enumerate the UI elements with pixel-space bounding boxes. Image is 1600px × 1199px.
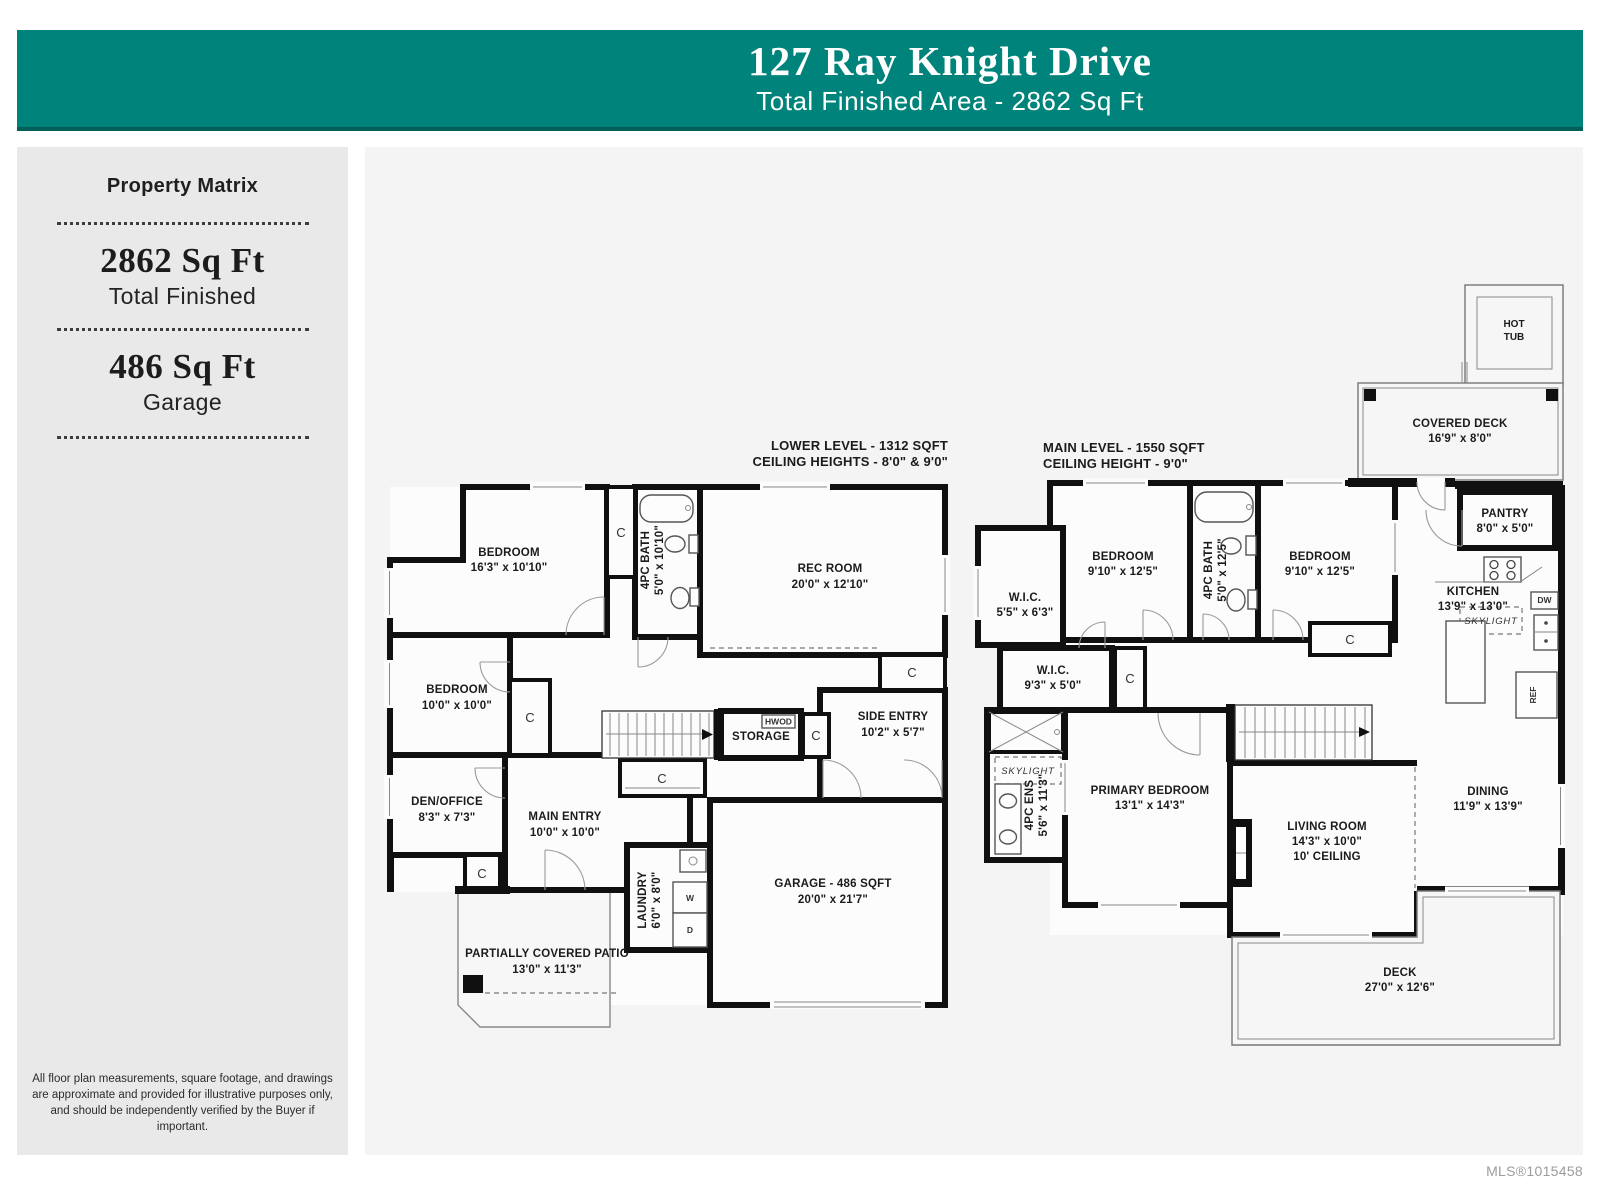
room-dims: 9'10" x 12'5" xyxy=(1088,566,1158,578)
room-dims: 9'3" x 5'0" xyxy=(1025,680,1082,692)
room-label: BEDROOM xyxy=(426,684,487,696)
covered-deck xyxy=(1358,383,1563,480)
total-finished-label: Total Finished xyxy=(109,283,257,310)
fireplace-icon xyxy=(1229,819,1252,887)
patio-post xyxy=(463,975,483,993)
room-label: LIVING ROOM xyxy=(1287,821,1367,833)
total-finished-value: 2862 Sq Ft xyxy=(100,241,264,281)
room-dims: 11'9" x 13'9" xyxy=(1453,801,1523,813)
room-label: DECK xyxy=(1383,967,1417,979)
property-matrix-panel: Property Matrix 2862 Sq Ft Total Finishe… xyxy=(17,147,348,1155)
room-label: SIDE ENTRY xyxy=(858,711,929,723)
page-subtitle: Total Finished Area - 2862 Sq Ft xyxy=(317,86,1583,117)
toilet-icon xyxy=(1227,589,1257,611)
room-wic-large xyxy=(1000,648,1112,710)
room-dims: 8'3" x 7'3" xyxy=(419,812,476,824)
main-level-ceiling: CEILING HEIGHT - 9'0" xyxy=(1043,456,1188,471)
room-dims: 10'2" x 5'7" xyxy=(861,727,925,739)
dishwasher-label: DW xyxy=(1537,595,1552,605)
property-matrix-title: Property Matrix xyxy=(107,175,258,198)
disclaimer-text: All floor plan measurements, square foot… xyxy=(32,1071,334,1135)
room-note: 10' CEILING xyxy=(1293,851,1361,863)
room-side-entry xyxy=(820,690,945,800)
hot-tub-label: HOT xyxy=(1503,319,1524,330)
stove-icon xyxy=(1484,557,1521,582)
room-dims: 9'10" x 12'5" xyxy=(1285,566,1355,578)
room-dims: 20'0" x 12'10" xyxy=(792,579,869,591)
room-label: GARAGE - 486 SQFT xyxy=(774,878,891,890)
room-wic-small xyxy=(978,528,1063,645)
room-label: 4PC ENS xyxy=(1024,780,1036,831)
room-dims: 27'0" x 12'6" xyxy=(1365,982,1435,994)
room-dims: 10'0" x 10'0" xyxy=(530,827,600,839)
closet-label: C xyxy=(1345,632,1354,647)
deck-post xyxy=(1546,389,1558,401)
room-label: REC ROOM xyxy=(798,563,863,575)
room-label: COVERED DECK xyxy=(1412,418,1508,430)
room-label: BEDROOM xyxy=(1289,551,1350,563)
skylight-label: SKYLIGHT xyxy=(1464,616,1518,627)
room-label: DINING xyxy=(1467,786,1508,798)
toilet-icon xyxy=(671,588,699,609)
room-dims: 16'3" x 10'10" xyxy=(471,562,548,574)
lower-level-title: LOWER LEVEL - 1312 SQFT xyxy=(771,438,948,453)
floor-plan-lower-level: LOWER LEVEL - 1312 SQFT CEILING HEIGHTS … xyxy=(380,430,960,1060)
closet-label: C xyxy=(657,771,666,786)
fridge-label: REF xyxy=(1528,687,1538,704)
sink-icon xyxy=(665,535,698,553)
lower-level-ceiling: CEILING HEIGHTS - 8'0" & 9'0" xyxy=(752,454,948,469)
room-dims: 6'0" x 8'0" xyxy=(651,872,663,929)
room-dims: 8'0" x 5'0" xyxy=(1477,523,1534,535)
room-dims: 10'0" x 10'0" xyxy=(422,700,492,712)
room-label: BEDROOM xyxy=(1092,551,1153,563)
stairs-main xyxy=(1235,705,1372,760)
closet-label: C xyxy=(477,866,486,881)
room-dims: 16'9" x 8'0" xyxy=(1428,433,1492,445)
hwod-label: HWOD xyxy=(765,717,792,727)
double-sink-icon xyxy=(995,784,1021,854)
deck-post xyxy=(1364,389,1376,401)
room-label: LAUNDRY xyxy=(637,871,649,928)
garage-value: 486 Sq Ft xyxy=(109,347,255,387)
mls-number: MLS®1015458 xyxy=(1486,1163,1583,1179)
bathtub-icon xyxy=(640,495,693,522)
garage-label: Garage xyxy=(143,389,222,416)
closet-label: C xyxy=(1125,671,1134,686)
closet-label: C xyxy=(616,525,625,540)
dotted-divider xyxy=(57,222,309,225)
room-living xyxy=(1230,763,1417,935)
room-label: PRIMARY BEDROOM xyxy=(1091,785,1210,797)
room-dims: 5'5" x 6'3" xyxy=(997,607,1054,619)
room-dims: 13'9" x 13'0" xyxy=(1438,601,1508,613)
hot-tub-label: TUB xyxy=(1504,332,1525,343)
room-label: 4PC BATH xyxy=(640,531,652,589)
closet-label: C xyxy=(525,710,534,725)
room-label: MAIN ENTRY xyxy=(528,811,601,823)
floor-plan-sheet: 127 Ray Knight Drive Total Finished Area… xyxy=(0,0,1600,1199)
room-label: W.I.C. xyxy=(1037,665,1070,677)
main-level-title: MAIN LEVEL - 1550 SQFT xyxy=(1043,440,1205,455)
dryer-icon: D xyxy=(687,925,693,935)
room-dims: 13'0" x 11'3" xyxy=(512,964,582,976)
room-label: BEDROOM xyxy=(478,547,539,559)
stairs-lower xyxy=(602,709,721,760)
closet-label: C xyxy=(907,665,916,680)
room-label: PARTIALLY COVERED PATIO xyxy=(465,948,629,960)
room-label: STORAGE xyxy=(732,731,790,743)
washer-icon: W xyxy=(686,893,695,903)
room-label: PANTRY xyxy=(1481,508,1528,520)
kitchen-sink-icon xyxy=(1534,615,1558,650)
closet-label: C xyxy=(811,728,820,743)
room-dims: 13'1" x 14'3" xyxy=(1115,800,1185,812)
dotted-divider xyxy=(57,328,309,331)
room-dims: 20'0" x 21'7" xyxy=(798,894,868,906)
shower-icon xyxy=(989,712,1063,752)
floor-plan-main-level: MAIN LEVEL - 1550 SQFT CEILING HEIGHT - … xyxy=(965,270,1575,1060)
garage-door xyxy=(770,998,925,1009)
bathtub-icon xyxy=(1195,492,1253,522)
page-title: 127 Ray Knight Drive xyxy=(317,40,1583,83)
room-label: W.I.C. xyxy=(1009,592,1042,604)
room-dims: 5'0" x 10'10" xyxy=(654,525,666,595)
kitchen-island xyxy=(1446,621,1485,703)
room-dims: 5'6" x 11'3" xyxy=(1038,774,1050,837)
room-pantry xyxy=(1460,492,1555,548)
room-label: DEN/OFFICE xyxy=(411,796,483,808)
room-dims: 5'0" x 12'5" xyxy=(1217,538,1229,602)
room-label: KITCHEN xyxy=(1447,586,1500,598)
header-banner: 127 Ray Knight Drive Total Finished Area… xyxy=(17,30,1583,131)
room-label: 4PC BATH xyxy=(1203,541,1215,599)
room-dims: 14'3" x 10'0" xyxy=(1292,836,1362,848)
dotted-divider xyxy=(57,436,309,439)
